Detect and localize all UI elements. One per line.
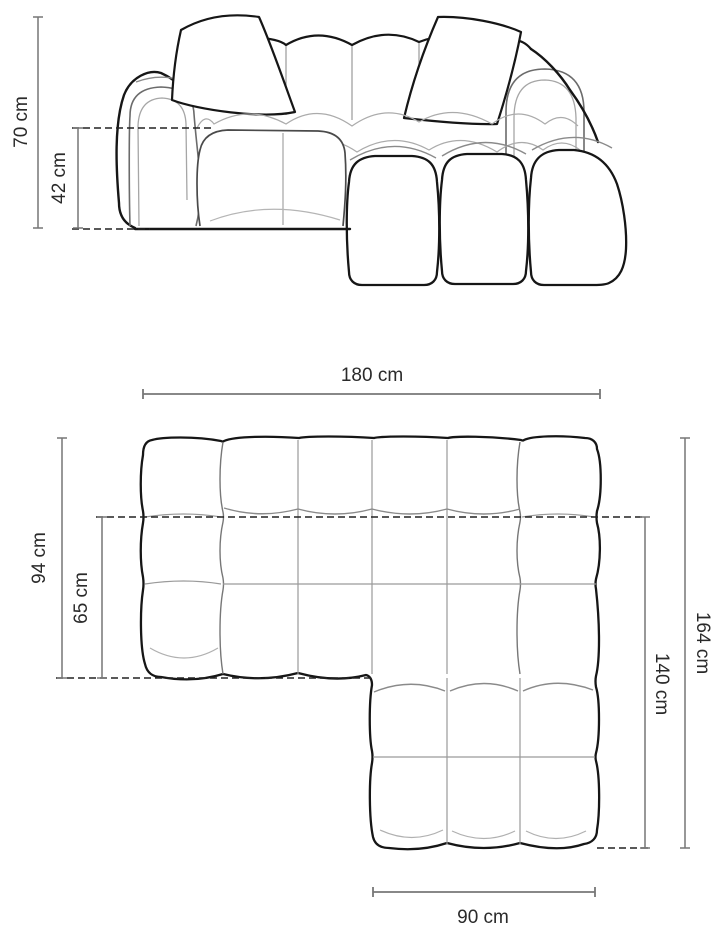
- dim-label-seat-height: 42 cm: [49, 152, 70, 204]
- dim-line-body-depth: [57, 438, 67, 678]
- dim-line-seat-depth: [97, 517, 107, 678]
- chaise-front-bubble-2: [440, 154, 529, 284]
- diagram-canvas: 70 cm 42 cm: [0, 0, 720, 940]
- dim-line-total-height: [33, 17, 43, 228]
- dim-chaise-depth: 140 cm: [640, 517, 672, 848]
- dim-label-total-depth: 164 cm: [692, 612, 713, 674]
- left-arm-inner-arch: [138, 98, 187, 226]
- left-seat-cushion: [197, 130, 346, 226]
- dim-label-total-width: 180 cm: [341, 365, 403, 386]
- dim-seat-depth: 65 cm: [71, 517, 107, 678]
- chaise-front-bubble-1: [347, 156, 440, 285]
- dim-label-chaise-width: 90 cm: [457, 907, 509, 928]
- dim-total-width: 180 cm: [143, 365, 600, 399]
- dim-line-chaise-width: [373, 887, 595, 897]
- dim-chaise-width: 90 cm: [373, 887, 595, 928]
- left-pillow: [172, 15, 295, 114]
- dim-line-total-width: [143, 389, 600, 399]
- dim-total-depth: 164 cm: [680, 438, 713, 848]
- dim-seat-height: 42 cm: [49, 128, 83, 228]
- dim-line-chaise-depth: [640, 517, 650, 848]
- dim-label-chaise-depth: 140 cm: [651, 653, 672, 715]
- plan-view: 180 cm 94 cm 65 cm 164 cm 140 cm 90 cm: [29, 365, 713, 928]
- left-arm-arch: [129, 87, 200, 226]
- dim-label-seat-depth: 65 cm: [71, 572, 92, 624]
- dim-label-body-depth: 94 cm: [29, 532, 50, 584]
- dim-body-depth: 94 cm: [29, 438, 67, 678]
- front-elevation-view: 70 cm 42 cm: [11, 15, 626, 285]
- chaise-front-bubble-3: [529, 150, 626, 285]
- dim-label-total-height: 70 cm: [11, 96, 32, 148]
- sofa-dimension-diagram: 70 cm 42 cm: [0, 0, 720, 940]
- dim-total-height: 70 cm: [11, 17, 43, 228]
- dim-line-seat-height: [73, 128, 83, 228]
- plan-outline-path: [141, 436, 601, 849]
- dim-line-total-depth: [680, 438, 690, 848]
